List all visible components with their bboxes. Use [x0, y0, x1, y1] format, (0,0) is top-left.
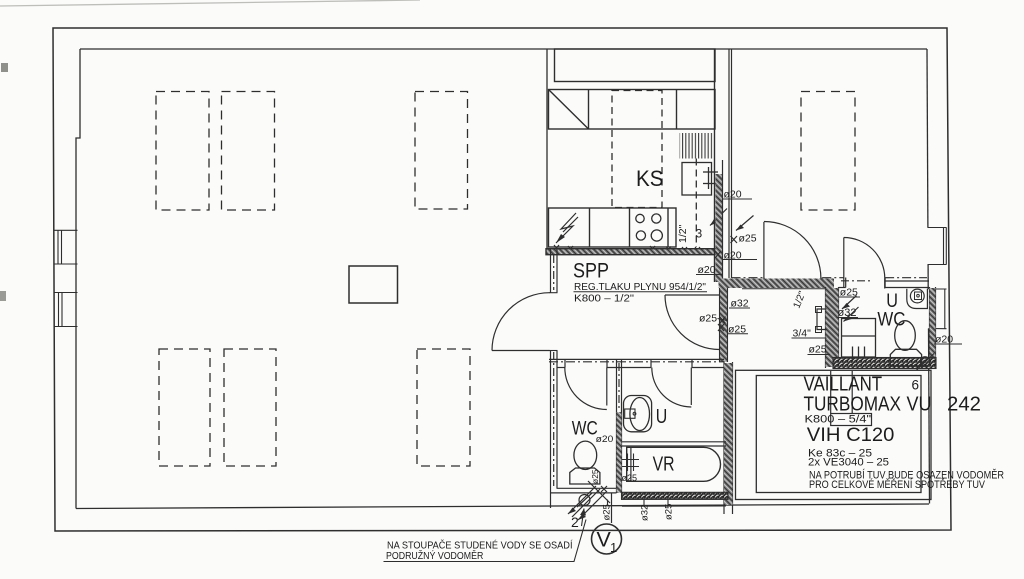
svg-text:3: 3 — [696, 227, 703, 241]
svg-text:VR: VR — [653, 454, 675, 476]
svg-text:TURBOMAX: TURBOMAX — [804, 394, 902, 416]
svg-text:ø25: ø25 — [664, 504, 675, 520]
svg-text:ø25: ø25 — [622, 473, 638, 484]
svg-text:WC: WC — [877, 310, 905, 331]
svg-text:KS: KS — [636, 166, 664, 191]
svg-text:ø25: ø25 — [809, 344, 827, 356]
svg-text:242: 242 — [947, 394, 981, 416]
svg-text:WC: WC — [572, 418, 598, 440]
svg-text:REG.TLAKU PLYNU 954/1/2": REG.TLAKU PLYNU 954/1/2" — [574, 282, 706, 293]
svg-text:ø25: ø25 — [739, 233, 757, 245]
svg-text:U: U — [656, 406, 668, 428]
svg-text:ø25: ø25 — [590, 469, 600, 484]
svg-text:ø25: ø25 — [699, 312, 717, 324]
svg-text:VIH C120: VIH C120 — [807, 424, 895, 446]
svg-text:2x VE3040 – 25: 2x VE3040 – 25 — [808, 457, 889, 469]
svg-text:SPP: SPP — [573, 260, 609, 283]
svg-text:1/2": 1/2" — [677, 224, 689, 243]
svg-text:VAILLANT: VAILLANT — [804, 374, 883, 396]
svg-text:K800 – 1/2": K800 – 1/2" — [574, 293, 634, 304]
svg-text:ø25: ø25 — [602, 504, 613, 520]
svg-text:1: 1 — [610, 540, 617, 555]
svg-text:PRO CELKOVÉ MĚŘENÍ SPOTŘEBY: PRO CELKOVÉ MĚŘENÍ SPOTŘEBY TUV — [809, 478, 986, 491]
svg-text:VU: VU — [907, 394, 932, 416]
svg-text:PODRUŽNÝ VODOMĚR: PODRUŽNÝ VODOMĚR — [386, 549, 484, 562]
svg-text:6: 6 — [912, 378, 920, 393]
svg-text:ø32: ø32 — [640, 505, 651, 521]
svg-text:ø20: ø20 — [596, 434, 614, 445]
svg-text:2: 2 — [571, 514, 579, 530]
